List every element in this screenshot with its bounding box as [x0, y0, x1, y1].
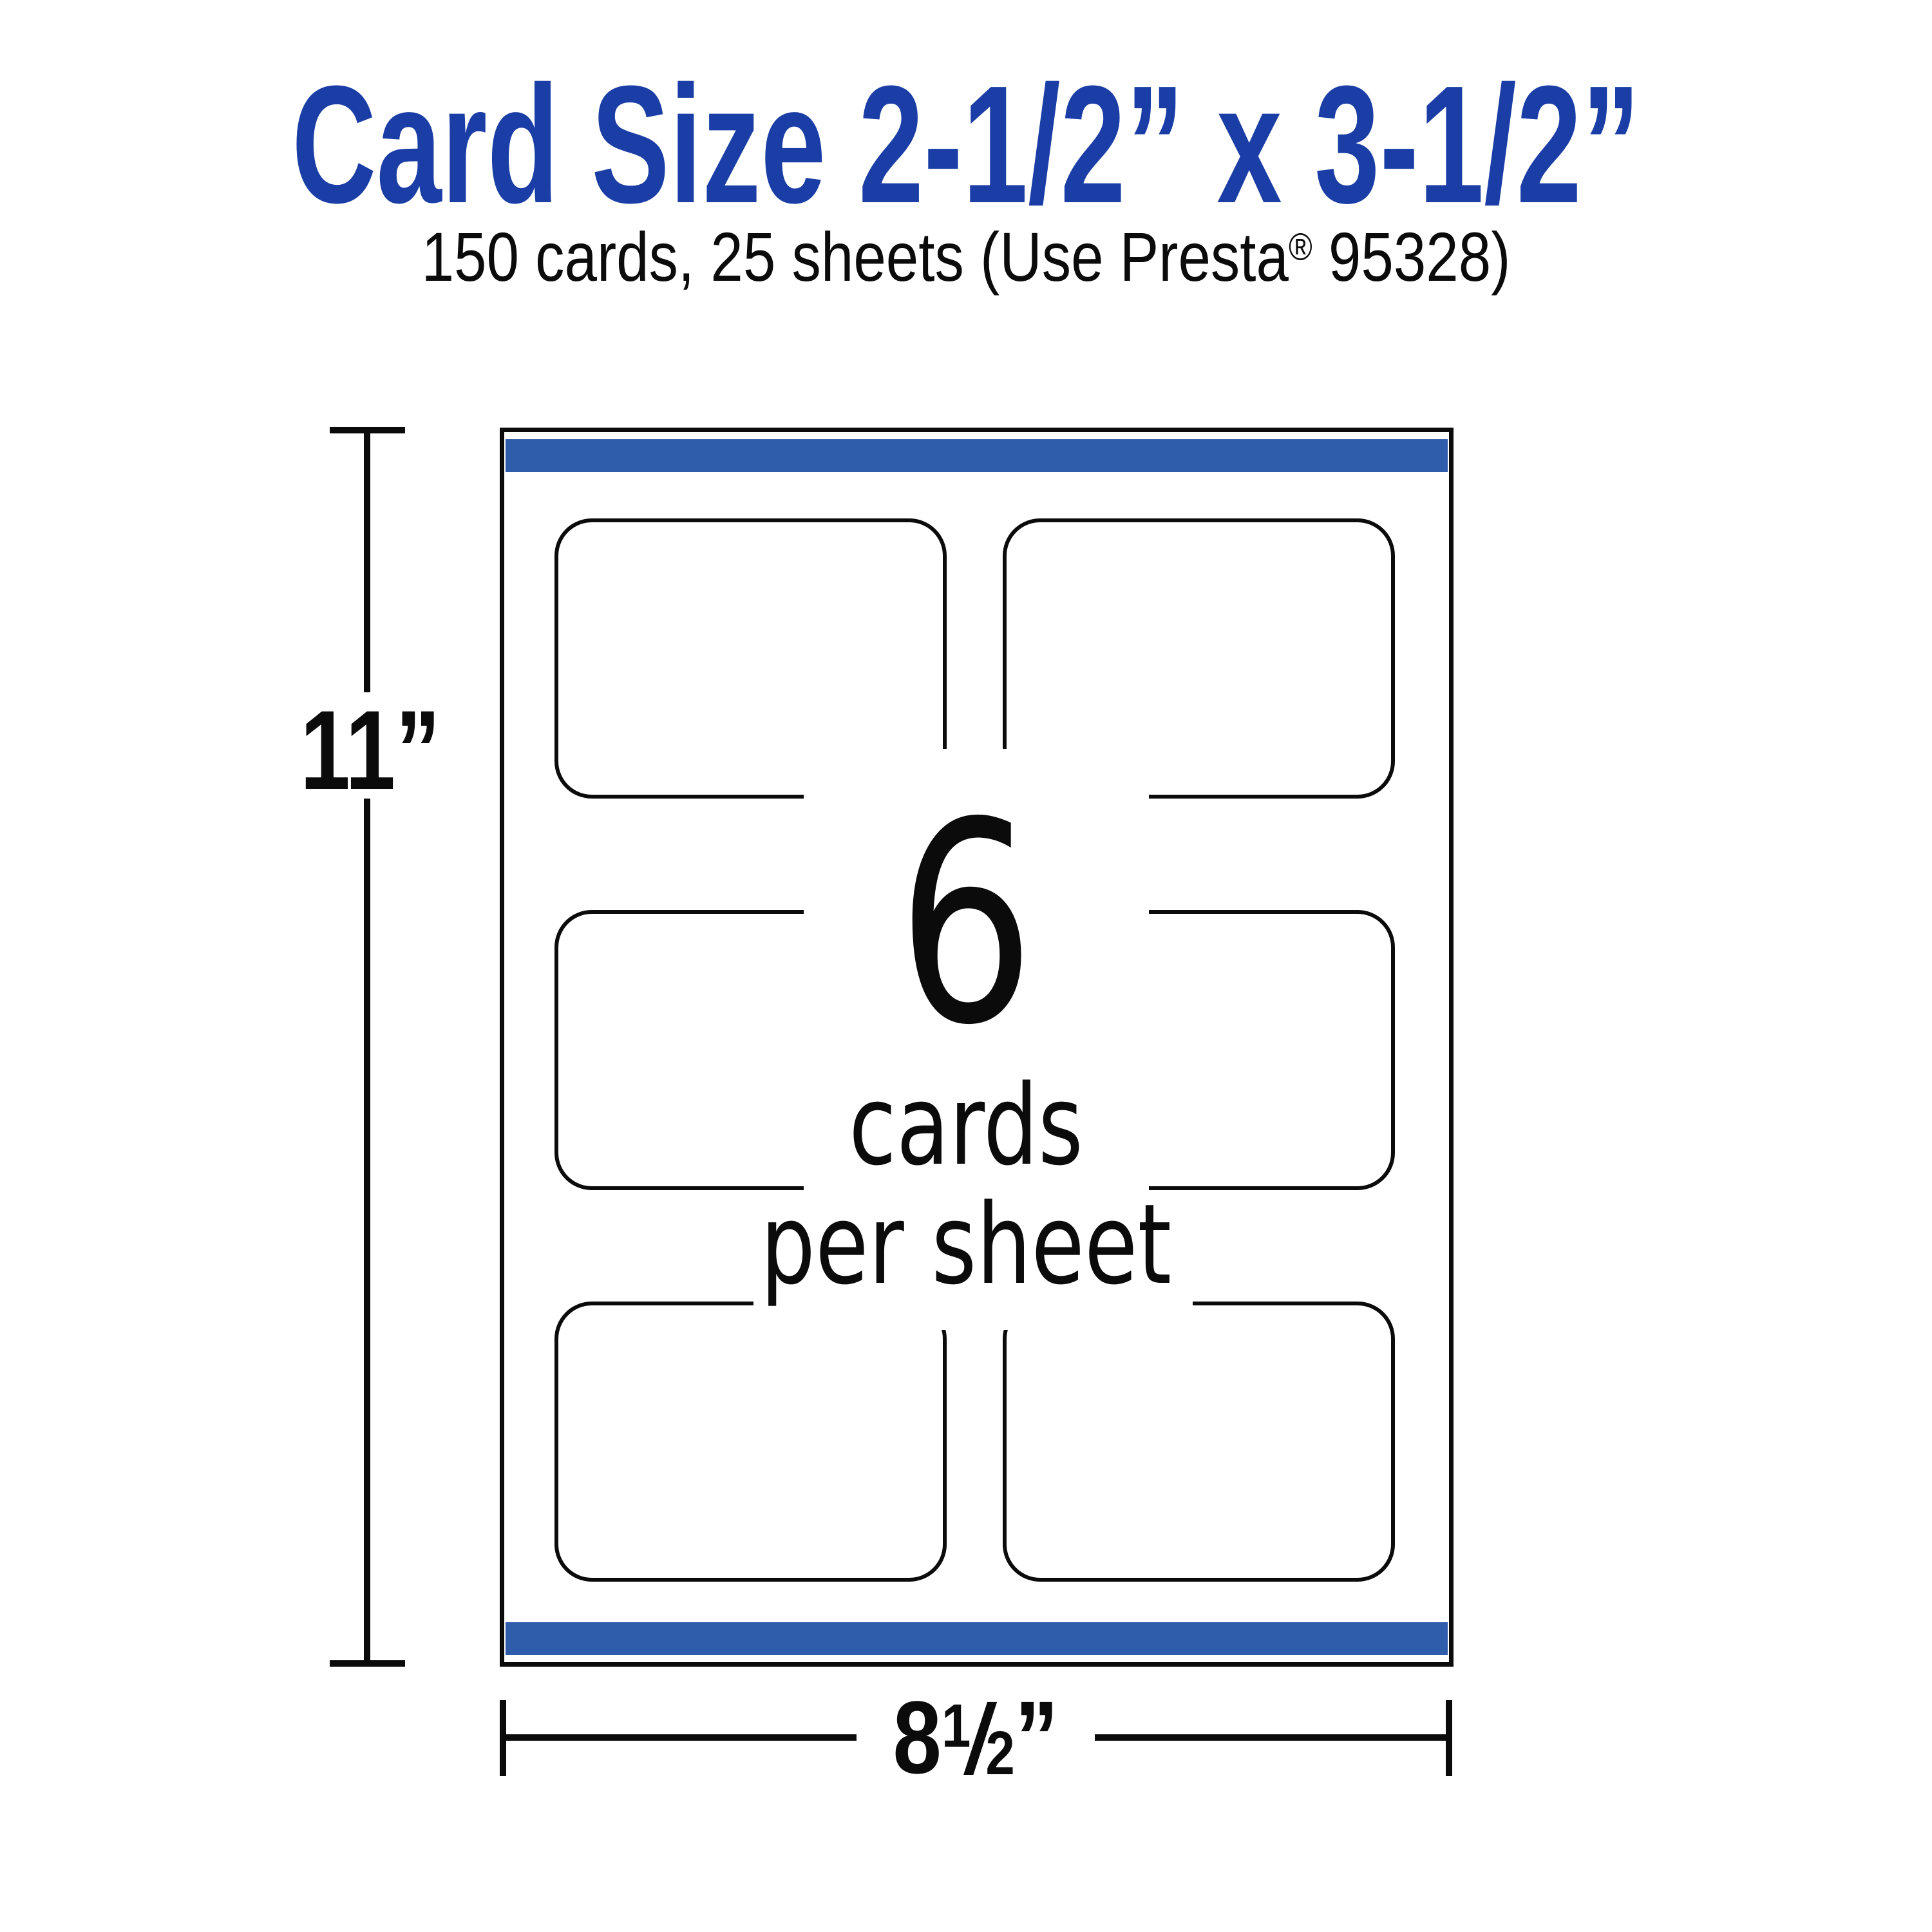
- width-dimension-line-left: [503, 1734, 857, 1741]
- width-unit-mark: ”: [1015, 1680, 1059, 1795]
- card-template-diagram: Card Size 2-1/2” x 3-1/2” 150 cards, 25 …: [0, 0, 1932, 1932]
- width-dimension-cap-left: [500, 1700, 506, 1776]
- registered-trademark-mark: ®: [1289, 225, 1312, 268]
- subtitle-suffix: 95328): [1312, 218, 1511, 296]
- width-dimension-line-right: [1095, 1734, 1449, 1741]
- subtitle-text: 150 cards, 25 sheets (Use Presta: [422, 218, 1289, 296]
- height-dimension-cap-bottom: [330, 1660, 405, 1667]
- width-whole-number: 8: [893, 1680, 942, 1795]
- page-subtitle: 150 cards, 25 sheets (Use Presta® 95328): [155, 219, 1777, 296]
- page-title: Card Size 2-1/2” x 3-1/2”: [290, 61, 1642, 229]
- height-dimension-line-upper: [364, 430, 370, 692]
- card-cutout: [554, 1302, 947, 1582]
- height-dimension-line-lower: [364, 799, 370, 1667]
- width-dimension-label: 81/2”: [811, 1686, 1140, 1789]
- cards-per-sheet-count: 6: [213, 786, 1719, 1063]
- card-cutout: [1003, 1302, 1395, 1582]
- width-fraction-denominator: 2: [985, 1719, 1014, 1788]
- per-sheet-label: per sheet: [213, 1189, 1719, 1300]
- height-dimension-label: 11”: [216, 694, 525, 807]
- width-dimension-cap-right: [1446, 1700, 1452, 1776]
- height-dimension-cap-top: [330, 427, 405, 433]
- cards-label: cards: [213, 1070, 1719, 1181]
